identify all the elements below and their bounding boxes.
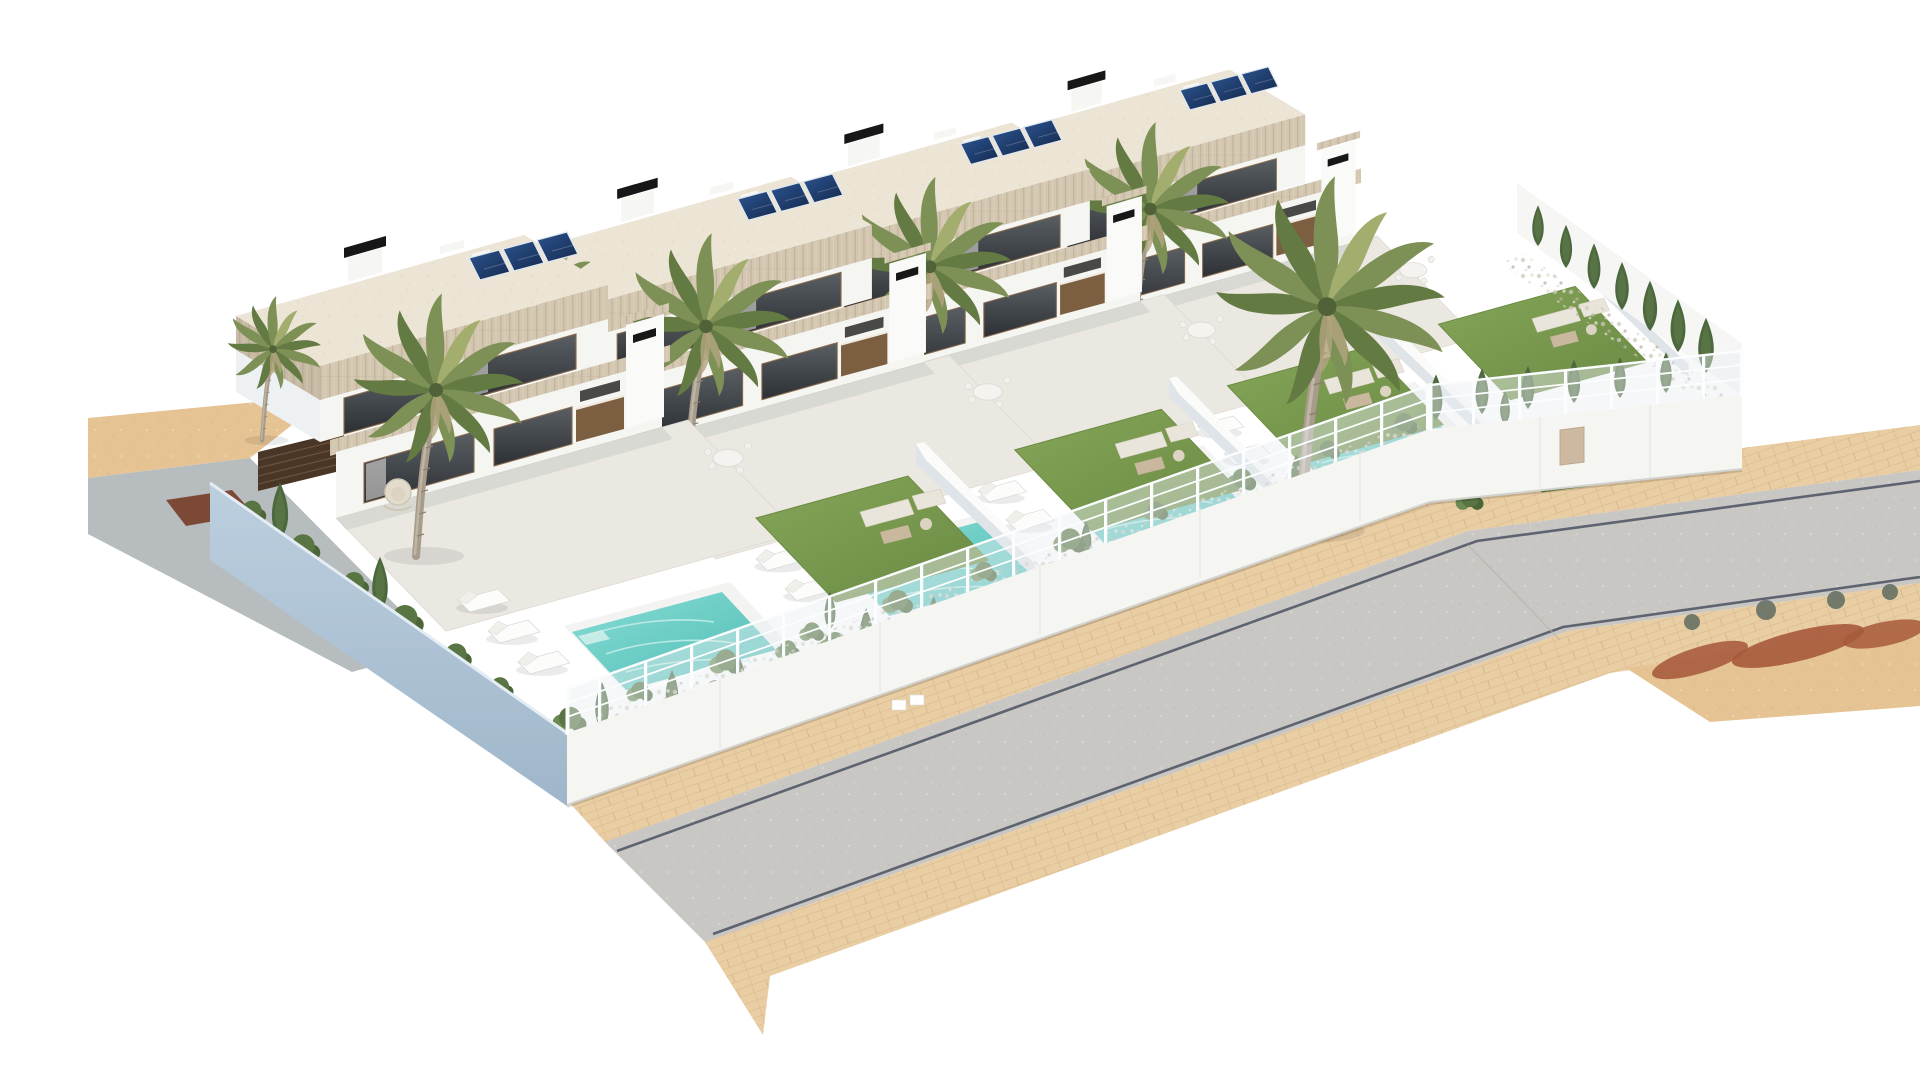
fence-post [566, 687, 570, 735]
scrub-tuft [1827, 591, 1845, 609]
render-canvas [0, 0, 1920, 1080]
scrub-tuft [1684, 614, 1700, 630]
utility-box [910, 695, 924, 705]
scrub-tuft [1756, 600, 1776, 620]
scrub-tuft [1882, 584, 1898, 600]
fence-post [1740, 349, 1744, 397]
fence-post [1429, 383, 1433, 431]
utility-box [892, 700, 906, 710]
garden-door [1560, 427, 1584, 465]
villa-development-render [0, 0, 1920, 1080]
